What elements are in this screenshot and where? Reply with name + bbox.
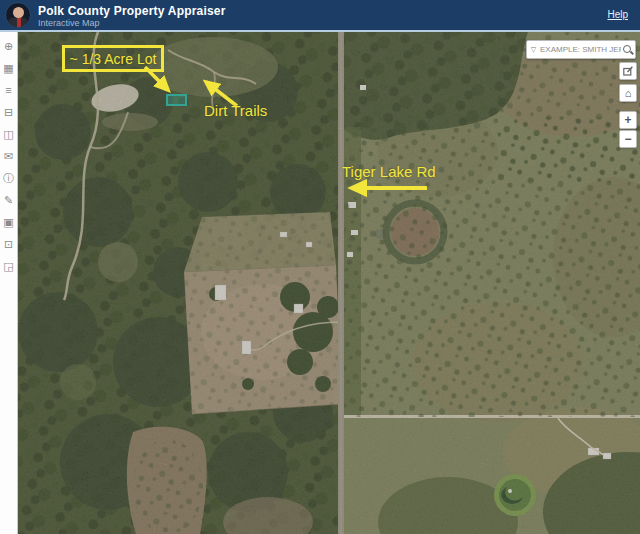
- search-icon[interactable]: [621, 44, 635, 56]
- help-link[interactable]: Help: [607, 9, 628, 20]
- home-icon: ⌂: [625, 87, 632, 99]
- gallery-icon: ◫: [3, 129, 13, 140]
- sidebar-tool-parcel-layers[interactable]: ◲: [0, 255, 18, 277]
- list-icon: ≡: [5, 85, 11, 96]
- sidebar-tool-legend[interactable]: ≡: [0, 79, 18, 101]
- pencil-icon: ✎: [4, 195, 13, 206]
- search-dropdown-icon[interactable]: ▽: [527, 46, 540, 54]
- image-export-icon: ▣: [3, 217, 13, 228]
- sidebar-tool-mail[interactable]: ✉: [0, 145, 18, 167]
- globe-icon: ⊕: [4, 41, 13, 52]
- aerial-imagery[interactable]: [18, 32, 640, 534]
- select-rectangle-icon: [623, 66, 633, 76]
- acre-lot-label: ~ 1/3 Acre Lot: [70, 51, 157, 67]
- sidebar-tool-draw[interactable]: ✎: [0, 189, 18, 211]
- sidebar-tool-print[interactable]: ⊟: [0, 101, 18, 123]
- app-subtitle: Interactive Map: [38, 18, 100, 28]
- search-input[interactable]: [540, 45, 621, 54]
- home-extent-button[interactable]: ⌂: [619, 84, 637, 102]
- search-box: ▽: [526, 40, 636, 59]
- sidebar-tool-layers-grid[interactable]: ▦: [0, 57, 18, 79]
- sidebar-tool-export[interactable]: ▣: [0, 211, 18, 233]
- appraiser-portrait-avatar: [5, 2, 31, 28]
- dirt-trails-label: Dirt Trails: [204, 102, 267, 119]
- select-extent-button[interactable]: [619, 62, 637, 80]
- zoom-in-button[interactable]: +: [619, 111, 637, 129]
- acre-lot-callout-box: ~ 1/3 Acre Lot: [62, 45, 164, 72]
- envelope-icon: ✉: [4, 151, 13, 162]
- sidebar-tool-gallery[interactable]: ◫: [0, 123, 18, 145]
- layers-icon: ◲: [3, 261, 13, 272]
- tiger-lake-rd-label: Tiger Lake Rd: [342, 163, 436, 180]
- minus-icon: −: [624, 132, 631, 146]
- zoom-out-button[interactable]: −: [619, 130, 637, 148]
- grid-icon: ▦: [3, 63, 13, 74]
- tool-sidebar: ⊕ ▦ ≡ ⊟ ◫ ✉ ⓘ ✎ ▣ ⊡ ◲: [0, 32, 18, 534]
- plus-icon: +: [624, 113, 631, 127]
- info-icon: ⓘ: [3, 173, 14, 184]
- map-viewport: ~ 1/3 Acre Lot Dirt Trails Tiger Lake Rd…: [18, 32, 640, 534]
- app-title: Polk County Property Appraiser: [38, 4, 226, 18]
- sidebar-tool-info[interactable]: ⓘ: [0, 167, 18, 189]
- parcel-highlight[interactable]: [166, 94, 187, 106]
- comment-icon: ⊡: [4, 239, 13, 250]
- app-header: Polk County Property Appraiser Interacti…: [0, 0, 640, 32]
- printer-icon: ⊟: [4, 107, 13, 118]
- sidebar-tool-globe[interactable]: ⊕: [0, 35, 18, 57]
- sidebar-tool-comment[interactable]: ⊡: [0, 233, 18, 255]
